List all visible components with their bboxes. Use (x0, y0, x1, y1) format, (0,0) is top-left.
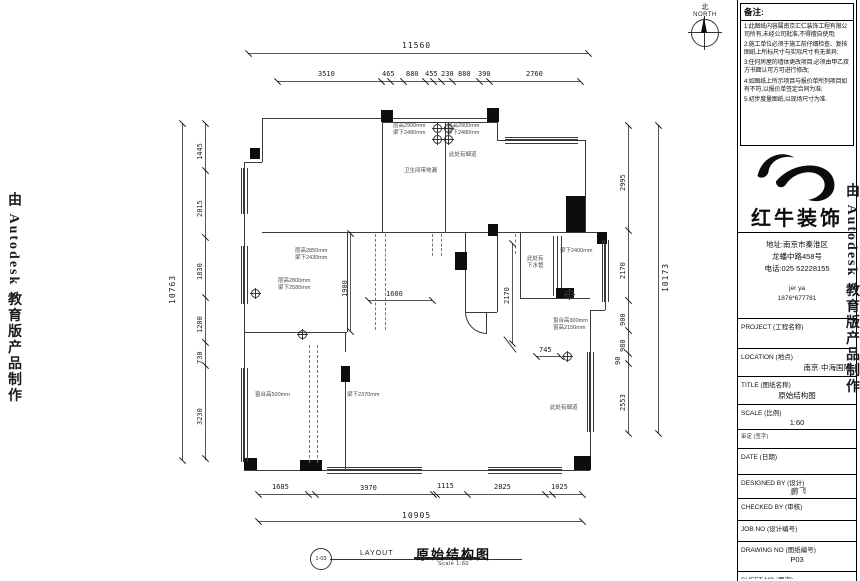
dimension-line (248, 53, 588, 54)
opening-dashed-line (309, 345, 310, 463)
drain-symbol (298, 330, 307, 339)
opening-dashed-line (317, 345, 318, 463)
dimension-label: 2015 (196, 200, 204, 217)
row-project: PROJECT (工程名称) (738, 318, 856, 348)
dimension-label: 1445 (196, 143, 204, 160)
dimension-label: 2170 (619, 262, 627, 279)
row-drawing-no: DRAWING NO (图纸编号) P03 (738, 541, 856, 571)
dimension-label: 980 (619, 339, 627, 352)
wall-column (341, 366, 350, 382)
drawing-footer: 1-03 LAYOUT 原始结构图 Scale 1:60 (300, 540, 560, 576)
row-scale-value: 1:60 (738, 418, 856, 427)
brand-name: 红牛装饰 (738, 202, 856, 231)
dimension-label: 1115 (437, 482, 454, 490)
row-project-label: PROJECT (工程名称) (738, 319, 856, 331)
room-annotation: 此处有下水管 (527, 256, 544, 270)
dimension-line (512, 243, 513, 343)
wall-segment (262, 232, 590, 233)
window-symbol (602, 240, 609, 302)
address-line: 龙蟠中路458号 (738, 251, 856, 263)
dimension-label: 455 (425, 70, 438, 78)
row-sheet-no: SHEET NO (页次) (738, 571, 856, 579)
row-scale: SCALE (比例) 1:60 (738, 404, 856, 429)
row-job-no: JOB NO (设计编号) (738, 520, 856, 541)
note-item: 5:初步度量图纸,以现场尺寸为准. (741, 94, 853, 104)
dimension-label: 3970 (360, 484, 377, 492)
door-leaf (486, 312, 487, 333)
opening-dashed-line (441, 234, 442, 256)
room-annotation: 梁下2400mm (560, 248, 592, 255)
dimension-label: 2760 (526, 70, 543, 78)
row-date-label: DATE (日期) (738, 449, 856, 461)
autodesk-watermark-left: 由 Autodesk 教育版产品制作 (3, 192, 23, 404)
window-symbol (241, 168, 248, 214)
note-item: 2:施工单位必须于施工前仔细检查、复核图纸上所标尺寸与实际尺寸有无差异; (741, 39, 853, 57)
drain-symbol (444, 124, 453, 133)
drain-symbol (433, 135, 442, 144)
dimension-label: 1025 (551, 483, 568, 491)
wall-segment (244, 332, 347, 333)
row-date: DATE (日期) (738, 448, 856, 474)
north-compass-icon (691, 19, 719, 47)
row-checked-by: CHECKED BY (审核) (738, 498, 856, 520)
row-approval: 审定 (签字) (738, 429, 856, 448)
dimension-label: 3510 (318, 70, 335, 78)
dimension-label: 2170 (503, 287, 511, 304)
row-title-value: 原始结构图 (738, 390, 856, 401)
wall-segment (382, 118, 383, 232)
drain-symbol (563, 352, 572, 361)
dimension-line (205, 123, 206, 460)
wall-column (487, 108, 499, 122)
layout-label: LAYOUT (360, 550, 394, 557)
room-annotation: 此处有烟道 (550, 405, 578, 412)
drawing-scale: Scale 1:60 (438, 561, 469, 567)
notes-box: 备注: 1:此图纸内容属南京汇仁装饰工程有限公司所有,未经公司批准,不得擅自使用… (740, 3, 854, 146)
dimension-label: 1200 (196, 316, 204, 333)
opening-dashed-line (515, 234, 516, 254)
wall-segment (345, 382, 346, 470)
room-annotation: 层高2900mm梁下2480mm (393, 123, 425, 137)
wall-segment (520, 298, 590, 299)
dimension-label: 2553 (619, 394, 627, 411)
wall-segment (520, 232, 521, 298)
dimension-label: 11560 (402, 41, 431, 50)
note-item: 4:如图纸上所示项目与报价单所列项目如有不符,以报价单签定合同为准; (741, 76, 853, 94)
dimension-label: 10905 (402, 511, 431, 520)
row-designed-by: DESIGNED BY (设计) 鹏飞 (738, 474, 856, 498)
drawing-sheet: 由 Autodesk 教育版产品制作 由 Autodesk 教育版产品制作 北 … (0, 0, 860, 581)
wall-column (455, 252, 467, 270)
dimension-line (182, 123, 183, 460)
dimension-line (536, 356, 560, 357)
opening-dashed-line (432, 234, 433, 256)
opening-dashed-line (375, 234, 376, 330)
dimension-label: 3230 (196, 408, 204, 425)
notes-title: 备注: (741, 4, 853, 21)
row-approval-label: 审定 (签字) (738, 430, 856, 440)
dimension-line (258, 521, 582, 522)
note-item: 1:此图纸内容属南京汇仁装饰工程有限公司所有,未经公司批准,不得擅自使用; (741, 21, 853, 39)
dimension-label: 1900 (341, 280, 349, 297)
wall-column (250, 148, 260, 159)
window-symbol (587, 352, 594, 432)
opening-dashed-line (385, 234, 386, 330)
room-annotation: 窗台高500mm (255, 392, 290, 399)
wall-column (381, 110, 393, 122)
window-symbol (488, 467, 562, 474)
window-symbol (327, 467, 422, 474)
dimension-label: 900 (619, 313, 627, 326)
note-item: 3:任何房屋的墙体更改项目,必须由甲乙双方书面认可方可进行修改; (741, 57, 853, 75)
row-title: TITLE (图纸名称) 原始结构图 (738, 376, 856, 404)
phone-line: 电话:025 52228155 (738, 263, 856, 275)
dimension-label: 90 (614, 357, 622, 365)
wall-column (488, 224, 498, 236)
title-block-panel: 备注: 1:此图纸内容属南京汇仁装饰工程有限公司所有,未经公司批准,不得擅自使用… (737, 0, 857, 581)
dimension-label: 1685 (272, 483, 289, 491)
wall-segment (590, 310, 605, 311)
dimension-line (277, 81, 580, 82)
drain-symbol (433, 124, 442, 133)
dimension-label: 390 (478, 70, 491, 78)
room-annotation: 梁下2370mm (347, 392, 379, 399)
row-scale-label: SCALE (比例) (738, 405, 856, 417)
row-title-label: TITLE (图纸名称) (738, 377, 856, 389)
dimension-label: 2825 (494, 483, 511, 491)
dimension-label: 1600 (386, 290, 403, 298)
row-sheet-no-label: SHEET NO (页次) (738, 572, 856, 579)
window-symbol (241, 246, 248, 304)
row-location: LOCATION (地点) 南京·中海国际 (738, 348, 856, 376)
dimension-line (658, 125, 659, 433)
brand-block: 红牛装饰 (738, 146, 856, 233)
window-symbol (505, 137, 578, 144)
contact-phone: 1876*677781 (738, 294, 856, 304)
drain-symbol (251, 289, 260, 298)
dimension-label: 880 (458, 70, 471, 78)
drain-symbol (444, 135, 453, 144)
wall-segment (244, 162, 262, 163)
row-checked-by-label: CHECKED BY (审核) (738, 499, 856, 511)
wall-column (574, 456, 591, 470)
room-annotation: 此处有烟道 (449, 152, 477, 159)
wall-segment (553, 236, 554, 296)
wall-segment (561, 236, 562, 296)
wall-segment (345, 332, 346, 352)
dimension-label: 880 (406, 70, 419, 78)
room-annotation: 层高2850mm梁下2430mm (295, 248, 327, 262)
wall-segment (262, 118, 263, 162)
row-drawing-no-value: P03 (738, 555, 856, 564)
dimension-label: 745 (539, 346, 552, 354)
dimension-line (368, 300, 432, 301)
dimension-label: 10173 (661, 263, 670, 292)
wall-segment (465, 232, 466, 312)
dimension-label: 10763 (168, 275, 177, 304)
dimension-label: 465 (382, 70, 395, 78)
wall-segment (497, 232, 498, 312)
room-annotation: 层高2800mm梁下2580mm (278, 278, 310, 292)
brand-address: 地址:南京市秦淮区 龙蟠中路458号 电话:025 52228155 jer y… (738, 233, 856, 318)
north-label-cn: 北 (684, 2, 726, 12)
dimension-line (350, 233, 351, 331)
room-annotation: 卫生间带地漏 (404, 168, 437, 175)
contact-name: jer ya (738, 284, 856, 294)
dimension-label: 1830 (196, 263, 204, 280)
window-symbol (241, 368, 248, 462)
drain-symbol (565, 290, 574, 299)
row-location-value: 南京·中海国际 (738, 362, 856, 373)
north-arrow: 北 NORTH (684, 2, 726, 47)
door-swing-arc (465, 312, 487, 334)
wall-column (566, 196, 585, 232)
wall-segment (557, 236, 558, 296)
autodesk-watermark-right: 由 Autodesk 教育版产品制作 (841, 183, 860, 395)
wall-column (300, 460, 322, 471)
wall-segment (262, 118, 497, 119)
wall-segment (585, 140, 586, 232)
dimension-label: 2995 (619, 174, 627, 191)
callout-bubble: 1-03 (310, 548, 332, 570)
row-job-no-label: JOB NO (设计编号) (738, 521, 856, 533)
bull-logo-icon (752, 148, 844, 204)
dimension-label: 730 (196, 351, 204, 364)
room-annotation: 窗台高300mm窗高2150mm (553, 318, 588, 332)
dimension-label: 230 (441, 70, 454, 78)
row-location-label: LOCATION (地点) (738, 349, 856, 361)
dimension-line (628, 125, 629, 433)
address-line: 地址:南京市秦淮区 (738, 239, 856, 251)
row-drawing-no-label: DRAWING NO (图纸编号) (738, 542, 856, 554)
